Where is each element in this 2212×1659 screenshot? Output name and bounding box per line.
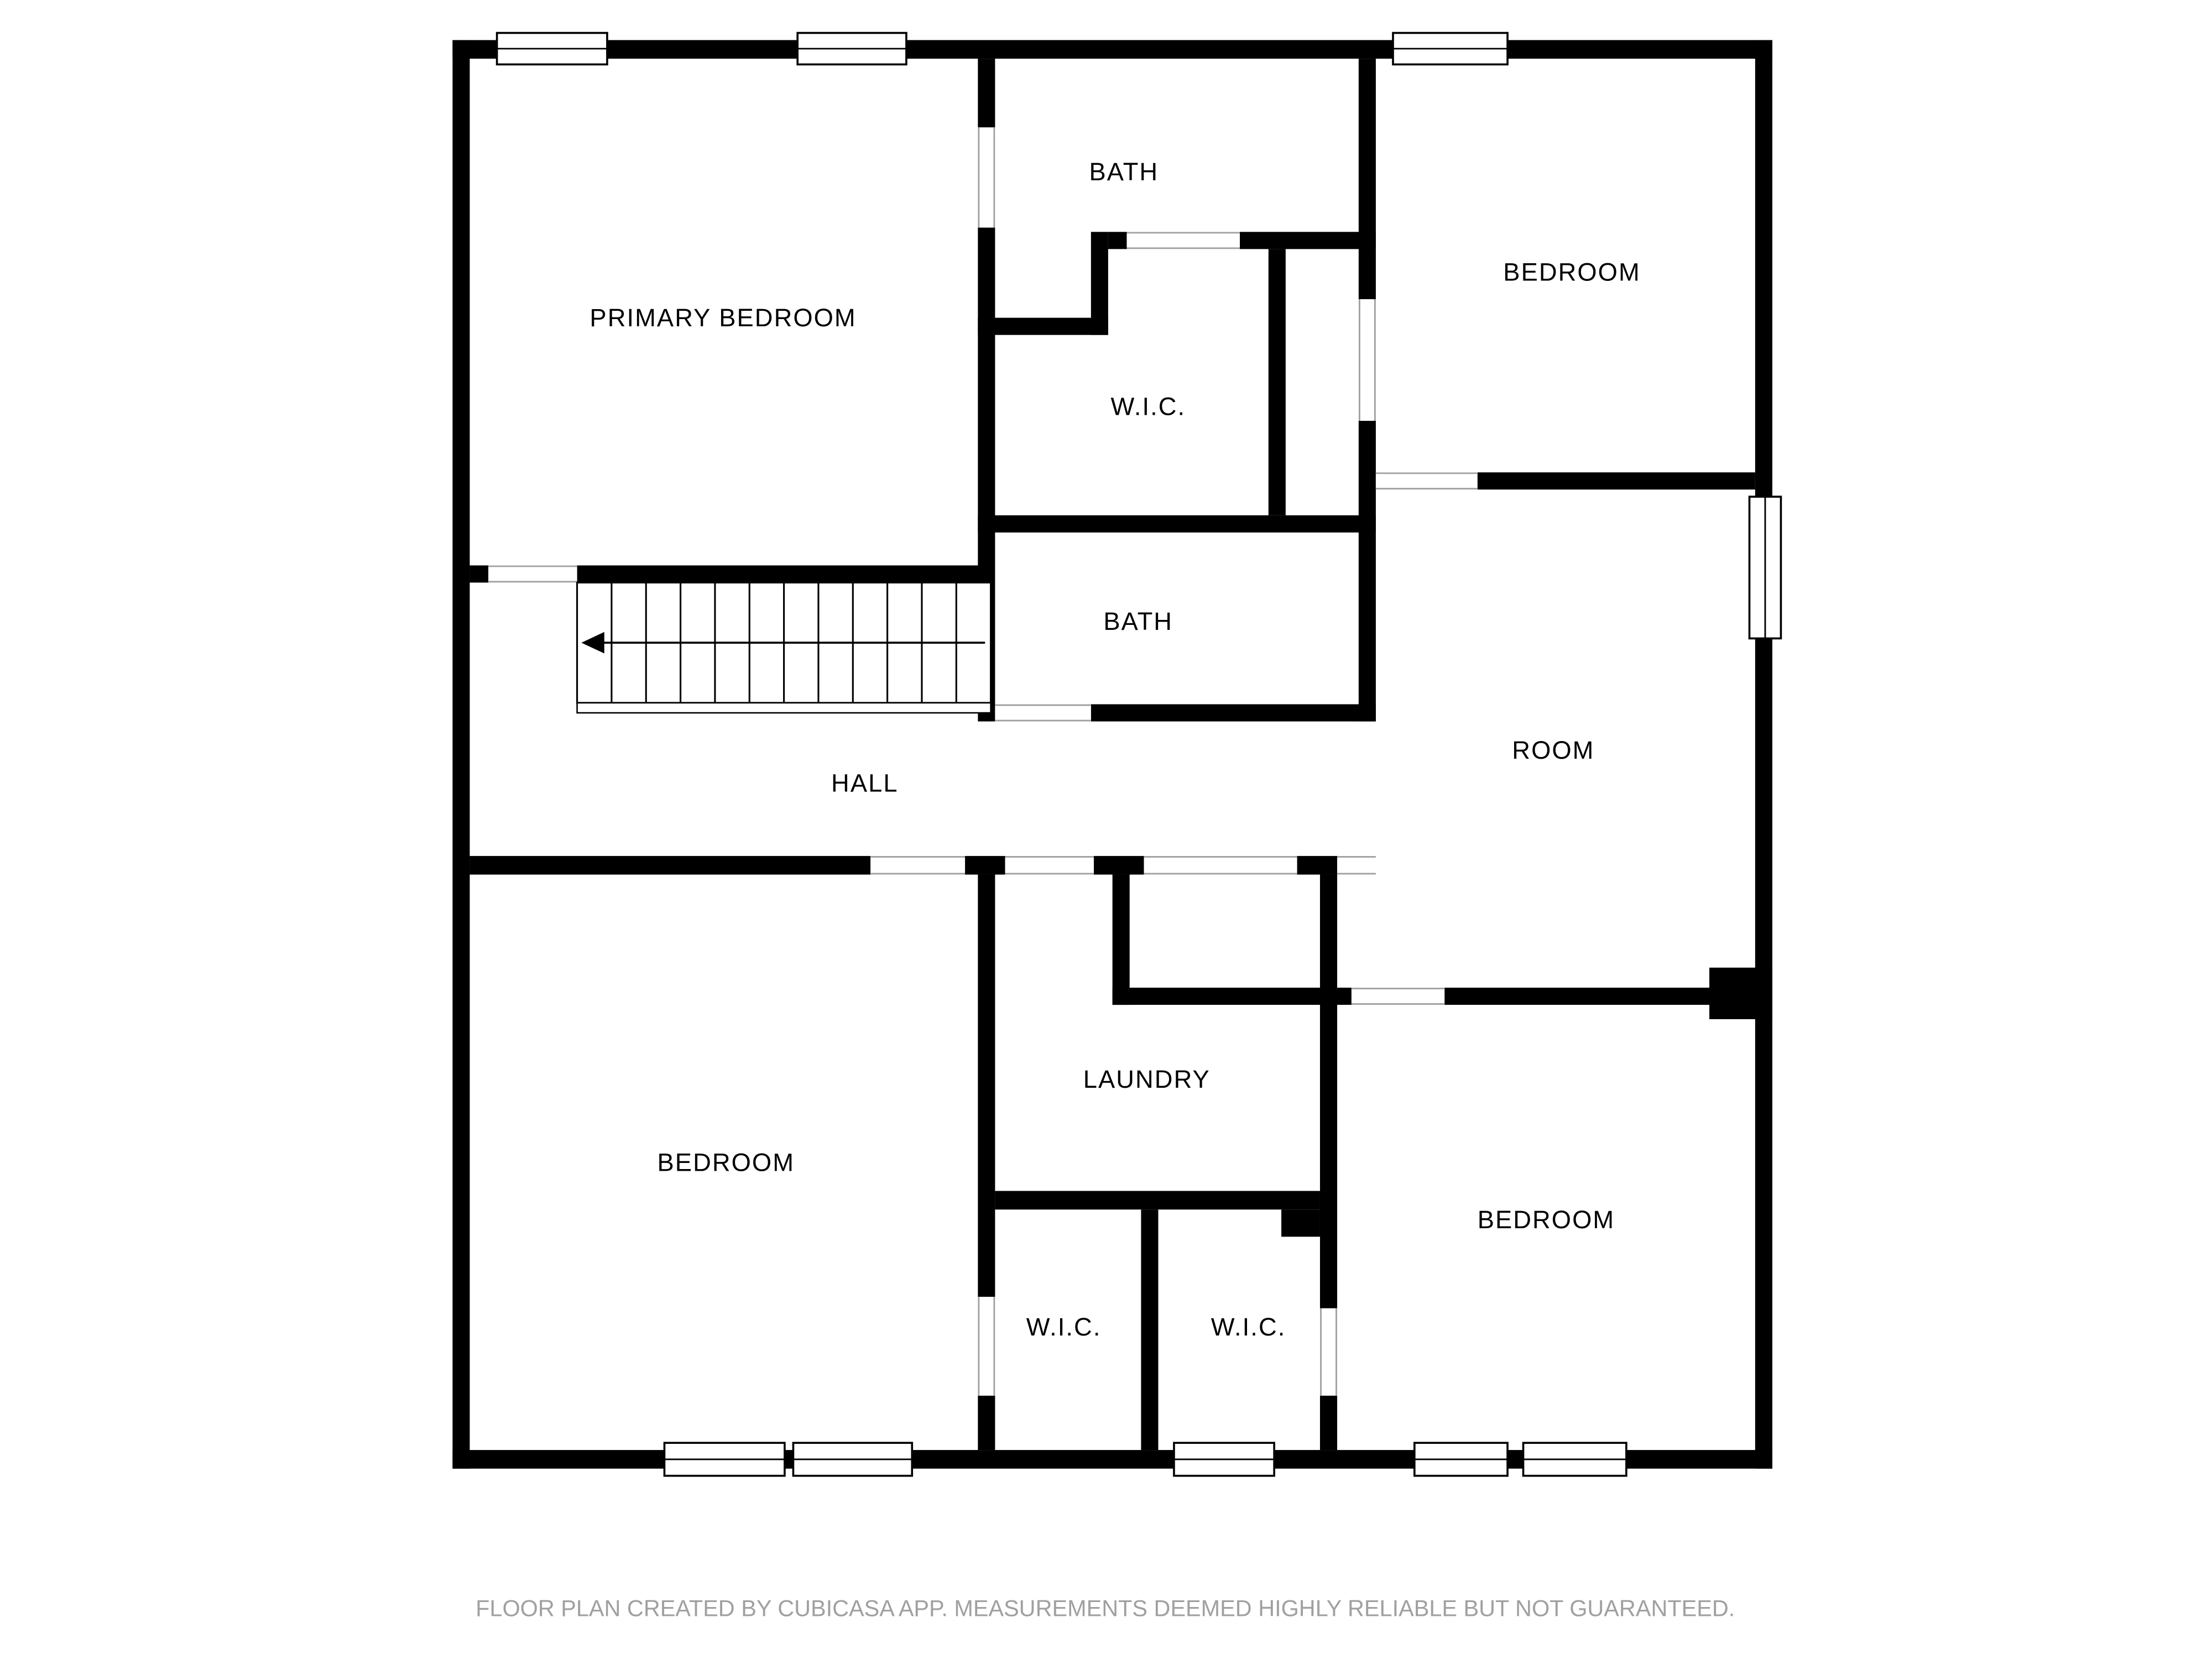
wall-segment — [978, 318, 1108, 335]
wall-segment — [452, 40, 469, 1468]
room-label-wic-top: W.I.C. — [1111, 393, 1186, 421]
footer-disclaimer: FLOOR PLAN CREATED BY CUBICASA APP. MEAS… — [476, 1595, 1735, 1621]
wall-segment — [469, 565, 488, 582]
door-opening — [1352, 988, 1444, 1005]
wall-segment — [1108, 232, 1127, 249]
wall-segment — [1269, 249, 1286, 515]
wall-segment — [1755, 40, 1772, 1468]
wall-segment — [1240, 232, 1376, 249]
wall-segment — [978, 515, 1376, 533]
wall-segment — [1297, 856, 1337, 875]
stairs — [577, 582, 991, 713]
room-label-bedroom-left: BEDROOM — [658, 1148, 795, 1176]
wall-segment — [1141, 1209, 1158, 1450]
wall-segment — [1320, 875, 1337, 1308]
door-opening — [1127, 232, 1240, 249]
wall-segment — [1320, 1396, 1337, 1450]
door-opening — [1337, 856, 1376, 875]
wall-segment — [1091, 705, 1376, 722]
wall-segment — [1359, 421, 1376, 722]
wall-segment — [1359, 59, 1376, 299]
room-label-room: ROOM — [1512, 736, 1594, 764]
wall-segment — [1281, 1209, 1320, 1237]
footer-layer: FLOOR PLAN CREATED BY CUBICASA APP. MEAS… — [476, 1595, 1735, 1621]
stairs-edge-strip — [577, 703, 991, 713]
room-label-bath-top: BATH — [1089, 158, 1159, 186]
room-label-bedroom-top-right: BEDROOM — [1503, 258, 1640, 286]
wall-segment — [452, 40, 1772, 59]
wall-segment — [1113, 875, 1130, 1005]
room-label-hall: HALL — [831, 769, 899, 797]
wall-segment — [1091, 232, 1108, 335]
floor-plan: PRIMARY BEDROOMBATHW.I.C.BEDROOMBATHROOM… — [0, 0, 2212, 1659]
wall-segment — [577, 565, 981, 582]
room-label-bath-middle: BATH — [1103, 607, 1173, 635]
wall-segment — [978, 1396, 995, 1450]
wall-segment — [978, 59, 995, 127]
wall-segment — [1709, 968, 1772, 1019]
wall-segment — [1444, 988, 1712, 1005]
door-opening — [995, 705, 1091, 722]
door-opening — [1320, 1308, 1337, 1396]
room-label-wic-right: W.I.C. — [1211, 1313, 1286, 1341]
room-label-primary-bedroom: PRIMARY BEDROOM — [589, 304, 856, 332]
wall-segment — [1478, 472, 1755, 489]
door-opening — [1376, 472, 1478, 489]
wall-segment — [1094, 856, 1144, 875]
door-opening — [1005, 856, 1094, 875]
room-labels-layer: PRIMARY BEDROOMBATHW.I.C.BEDROOMBATHROOM… — [589, 158, 1640, 1341]
wall-segment — [1113, 988, 1352, 1005]
wall-segment — [469, 856, 870, 875]
room-label-wic-left: W.I.C. — [1026, 1313, 1102, 1341]
room-label-bedroom-right: BEDROOM — [1478, 1206, 1615, 1234]
door-opening — [870, 856, 965, 875]
door-opening — [978, 1297, 995, 1396]
wall-segment — [978, 875, 995, 1297]
door-opening — [1144, 856, 1297, 875]
door-opening — [488, 565, 577, 582]
wall-segment — [995, 1191, 1320, 1210]
door-opening — [1359, 299, 1376, 421]
room-label-laundry: LAUNDRY — [1083, 1065, 1211, 1093]
door-opening — [978, 127, 995, 227]
wall-segment — [965, 856, 1005, 875]
